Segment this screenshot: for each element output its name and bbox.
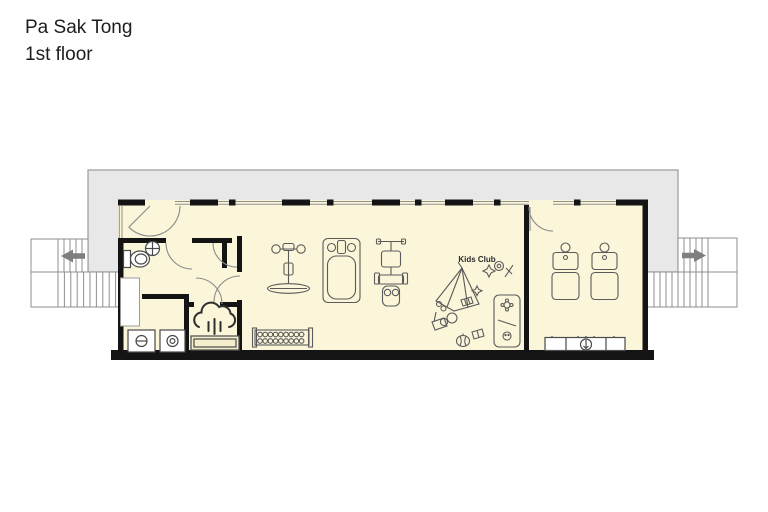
floorplan-drawing: Kids Club	[0, 0, 768, 512]
kids-club-label: Kids Club	[458, 255, 495, 264]
floorplan-page: Pa Sak Tong 1st floor	[0, 0, 768, 512]
washing-machine-icon	[128, 330, 155, 352]
shower-counter	[121, 278, 140, 326]
toilet-icon	[124, 251, 131, 268]
steam-bench	[191, 336, 239, 350]
sink-icon	[146, 242, 160, 256]
dryer-icon	[160, 330, 185, 352]
building-floor	[118, 200, 648, 352]
spa-counter	[545, 336, 625, 351]
